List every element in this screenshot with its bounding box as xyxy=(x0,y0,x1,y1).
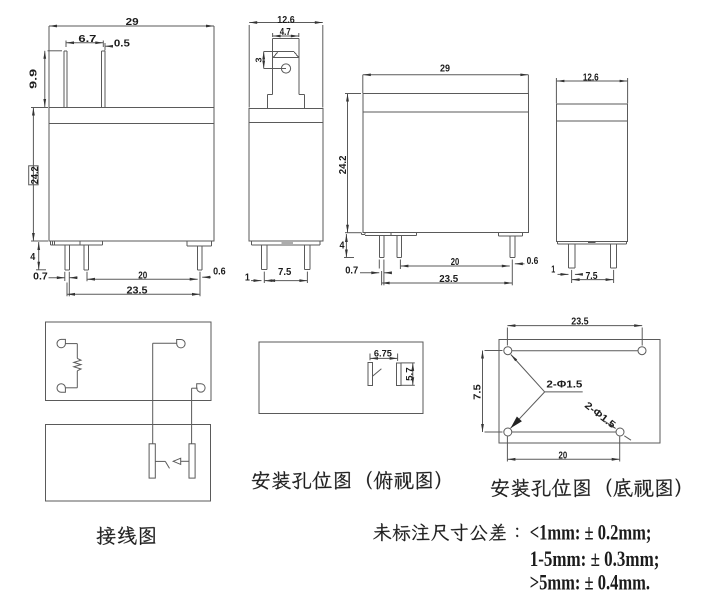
svg-text:9.9: 9.9 xyxy=(29,68,40,89)
svg-text:<1mm: ± 0.2mm;: <1mm: ± 0.2mm; xyxy=(530,520,652,545)
svg-text:1-5mm: ± 0.3mm;: 1-5mm: ± 0.3mm; xyxy=(530,546,660,571)
svg-text:0.6: 0.6 xyxy=(527,256,539,267)
svg-text:29: 29 xyxy=(126,17,140,28)
svg-text:7.5: 7.5 xyxy=(586,271,598,282)
svg-text:24.2: 24.2 xyxy=(338,155,349,174)
svg-text:20: 20 xyxy=(138,270,147,281)
svg-text:6.75: 6.75 xyxy=(374,349,392,359)
svg-text:12.6: 12.6 xyxy=(583,73,599,84)
svg-text:1: 1 xyxy=(245,273,250,284)
svg-text:4.7: 4.7 xyxy=(280,27,291,38)
svg-text:7.5: 7.5 xyxy=(278,267,292,278)
svg-text:23.5: 23.5 xyxy=(439,274,458,285)
svg-text:>5mm: ± 0.4mm.: >5mm: ± 0.4mm. xyxy=(530,570,650,595)
svg-text:1: 1 xyxy=(551,265,555,276)
svg-text:7.5: 7.5 xyxy=(473,384,484,400)
svg-text:12.6: 12.6 xyxy=(277,15,295,26)
svg-text:29: 29 xyxy=(440,64,450,75)
svg-text:0.6: 0.6 xyxy=(213,267,226,278)
svg-text:2-Φ1.5: 2-Φ1.5 xyxy=(546,380,582,391)
svg-text:4: 4 xyxy=(30,252,35,263)
svg-text:6.7: 6.7 xyxy=(78,34,97,45)
svg-text:0.7: 0.7 xyxy=(345,266,358,277)
svg-text:0.5: 0.5 xyxy=(114,39,130,50)
svg-text:20: 20 xyxy=(559,451,568,462)
svg-text:4: 4 xyxy=(340,241,345,252)
svg-text:23.5: 23.5 xyxy=(571,316,589,327)
svg-text:0.7: 0.7 xyxy=(33,272,48,283)
svg-text:3: 3 xyxy=(255,57,264,63)
svg-text:20: 20 xyxy=(451,257,460,268)
svg-text:5.7: 5.7 xyxy=(404,367,414,381)
svg-text:24.2: 24.2 xyxy=(30,166,41,184)
svg-text:23.5: 23.5 xyxy=(127,286,148,297)
